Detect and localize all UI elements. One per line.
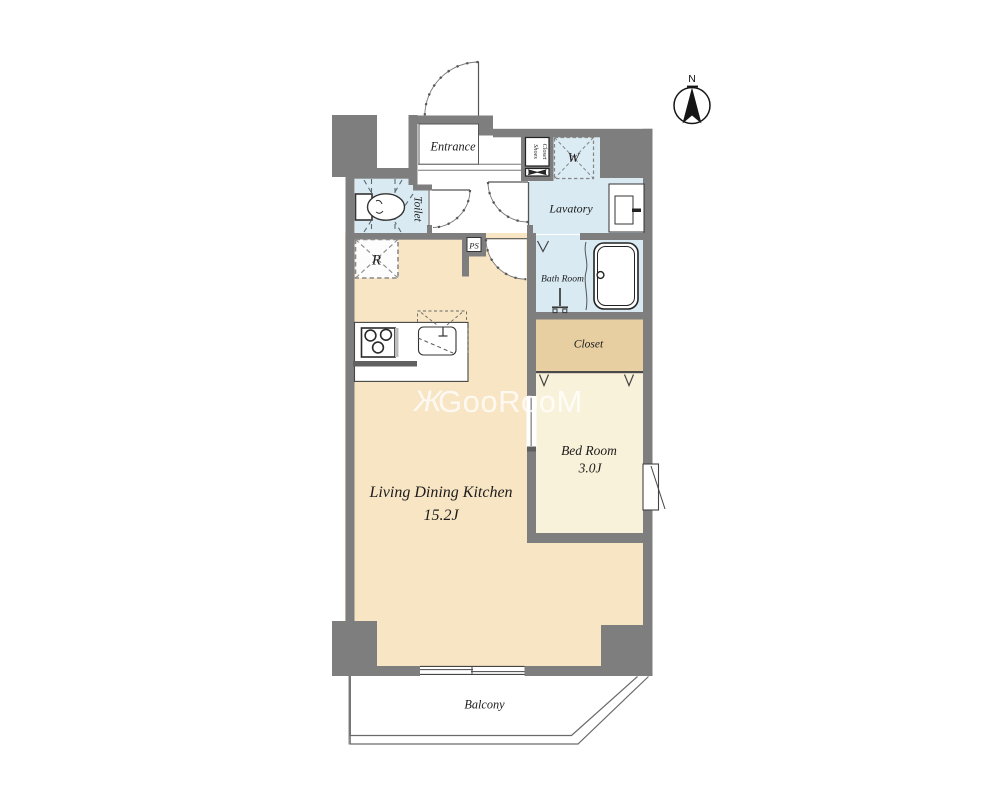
svg-text:GooRooM: GooRooM (438, 384, 583, 419)
svg-text:Lavatory: Lavatory (548, 202, 593, 216)
svg-text:Toilet: Toilet (412, 196, 424, 222)
svg-text:R: R (371, 253, 381, 269)
svg-text:Living Dining Kitchen: Living Dining Kitchen (368, 484, 512, 501)
svg-text:N: N (688, 73, 696, 85)
svg-text:3.0J: 3.0J (578, 461, 603, 476)
svg-text:Closet: Closet (574, 339, 604, 351)
svg-text:Closet: Closet (541, 143, 548, 159)
svg-text:15.2J: 15.2J (423, 507, 459, 524)
svg-text:Balcony: Balcony (464, 698, 505, 712)
svg-text:Bed Room: Bed Room (561, 443, 617, 458)
svg-text:Entrance: Entrance (429, 140, 476, 154)
svg-text:PS: PS (468, 241, 479, 251)
svg-text:W: W (568, 151, 581, 166)
svg-text:Bath Room: Bath Room (541, 274, 584, 285)
svg-text:Shoes: Shoes (532, 144, 539, 159)
